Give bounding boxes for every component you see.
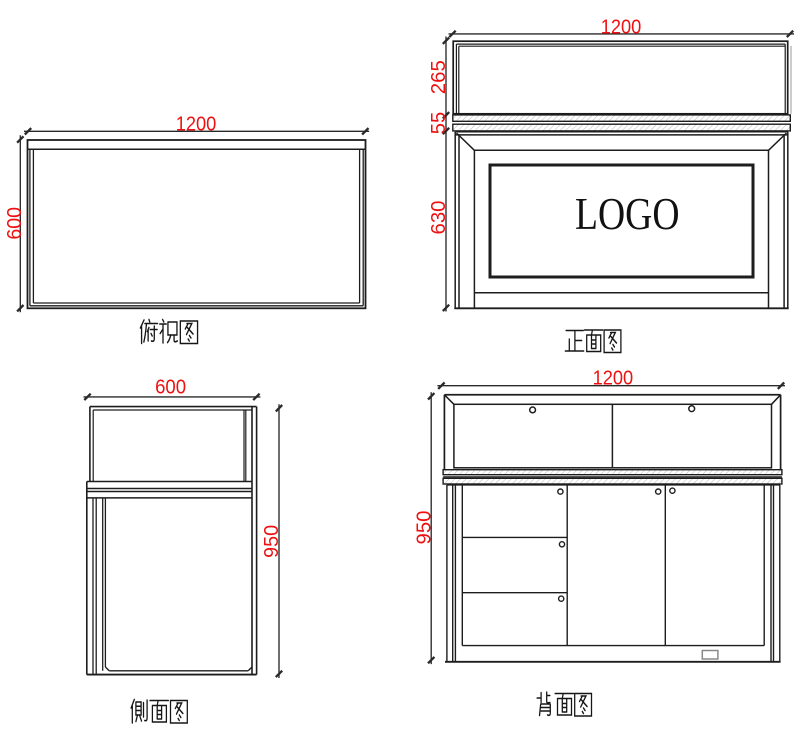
- svg-text:630: 630: [427, 201, 450, 235]
- svg-text:950: 950: [412, 511, 435, 545]
- svg-text:1200: 1200: [593, 367, 634, 390]
- svg-text:1200: 1200: [601, 15, 642, 38]
- svg-text:265: 265: [427, 60, 450, 94]
- svg-text:950: 950: [260, 525, 283, 558]
- svg-text:1200: 1200: [176, 112, 217, 135]
- svg-text:55: 55: [427, 112, 450, 135]
- svg-text:LOGO: LOGO: [575, 188, 680, 239]
- svg-text:600: 600: [155, 375, 186, 398]
- svg-text:600: 600: [3, 207, 26, 240]
